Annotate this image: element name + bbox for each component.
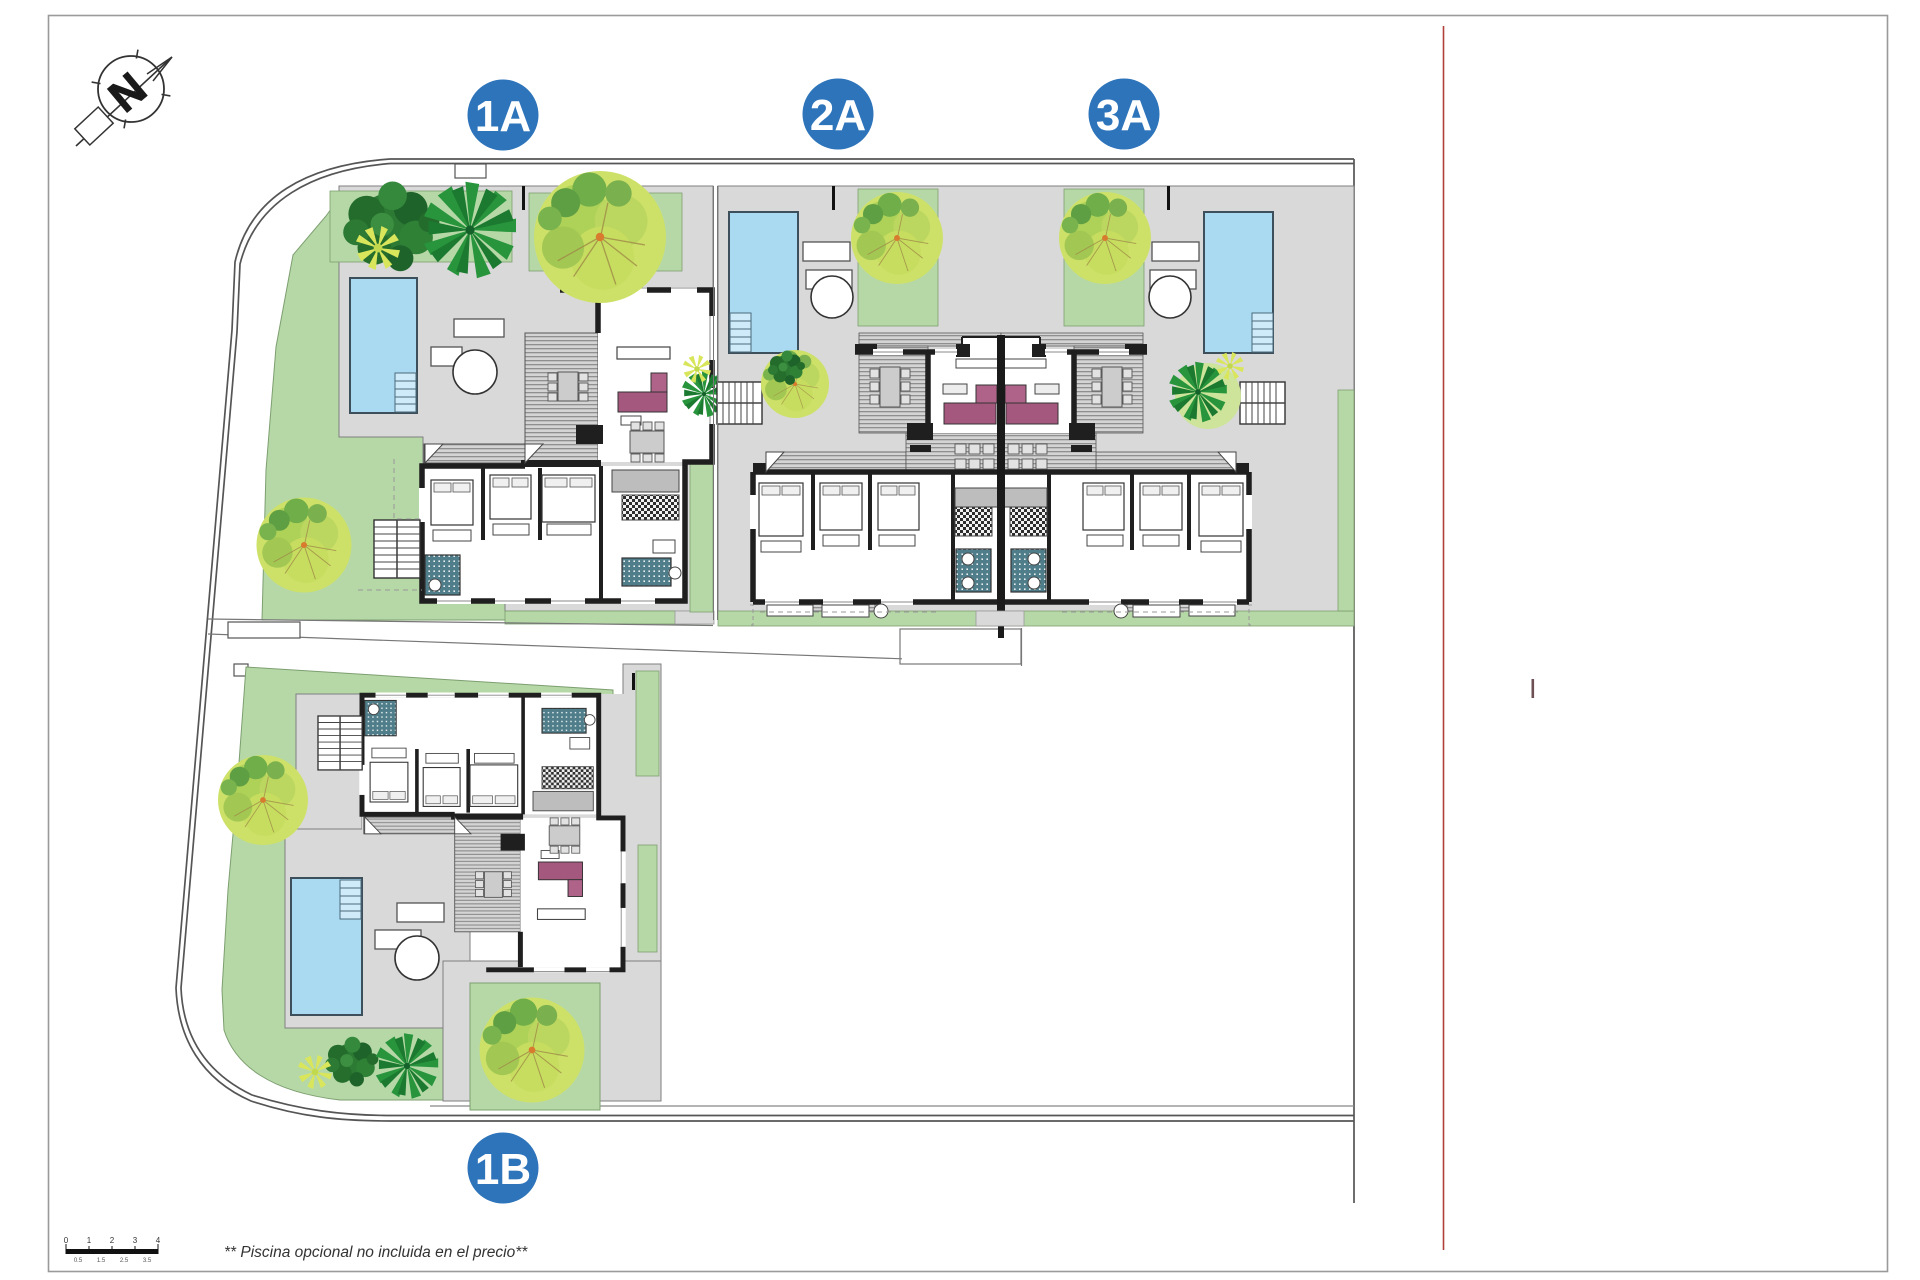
svg-text:1A: 1A [475,92,531,141]
svg-text:2: 2 [110,1236,115,1245]
svg-text:3: 3 [133,1236,138,1245]
svg-text:3A: 3A [1096,91,1152,140]
svg-text:2.5: 2.5 [120,1258,129,1264]
svg-text:1B: 1B [475,1145,531,1194]
svg-text:3.5: 3.5 [143,1258,152,1264]
svg-text:4: 4 [156,1236,161,1245]
svg-text:1: 1 [87,1236,92,1245]
svg-text:0: 0 [64,1236,69,1245]
svg-text:2A: 2A [810,91,866,140]
svg-text:1.5: 1.5 [97,1258,106,1264]
svg-text:** Piscina opcional no incluid: ** Piscina opcional no incluida en el pr… [224,1244,528,1261]
svg-text:0.5: 0.5 [74,1258,83,1264]
